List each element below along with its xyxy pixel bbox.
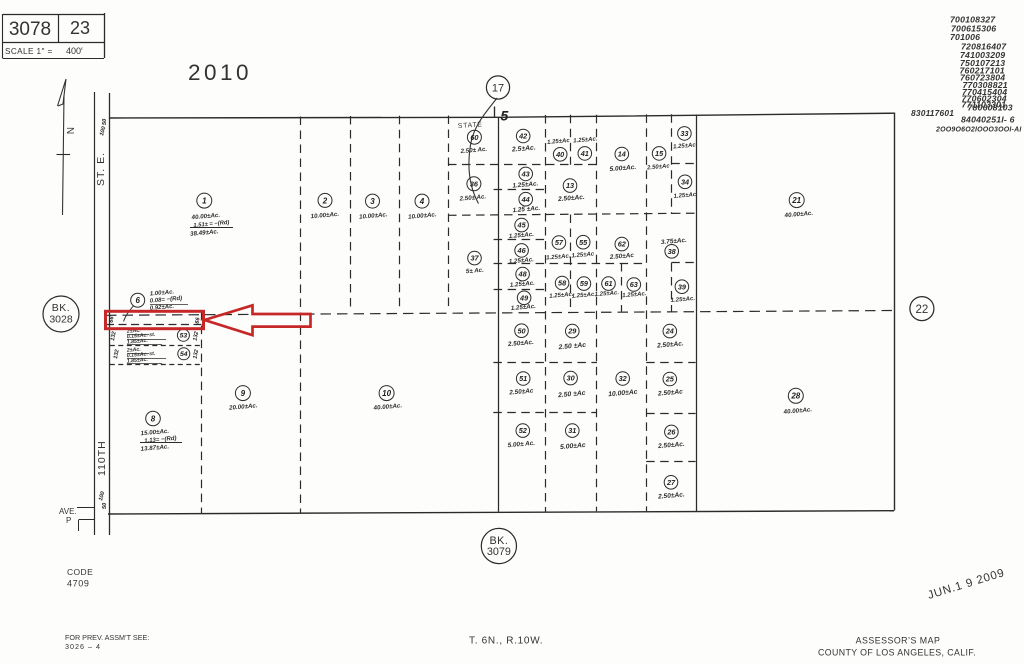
svg-text:40: 40	[555, 150, 564, 159]
svg-text:38: 38	[668, 247, 677, 256]
svg-text:49: 49	[519, 293, 529, 302]
svg-text:21: 21	[791, 196, 801, 205]
svg-text:23: 23	[70, 18, 90, 38]
svg-text:42: 42	[518, 132, 527, 141]
svg-text:84040251I- 6: 84040251I- 6	[961, 115, 1015, 125]
svg-text:55: 55	[579, 238, 588, 247]
svg-text:50: 50	[102, 118, 108, 125]
svg-text:400′: 400′	[66, 46, 83, 56]
svg-text:4709: 4709	[67, 579, 89, 589]
svg-text:4: 4	[419, 197, 425, 206]
svg-text:AVE.: AVE.	[59, 507, 77, 516]
svg-text:22: 22	[916, 304, 929, 316]
svg-text:51: 51	[519, 374, 527, 383]
svg-text:3026 – 4: 3026 – 4	[65, 642, 101, 651]
svg-text:3079: 3079	[487, 546, 511, 558]
svg-text:43: 43	[521, 170, 530, 179]
svg-text:29: 29	[567, 327, 577, 336]
svg-text:50: 50	[517, 326, 525, 335]
svg-text:39: 39	[678, 282, 687, 291]
svg-text:8: 8	[151, 414, 156, 423]
svg-text:3: 3	[370, 197, 375, 206]
svg-text:60: 60	[470, 133, 478, 142]
svg-text:6: 6	[135, 296, 140, 305]
svg-text:58: 58	[558, 279, 567, 288]
svg-text:P: P	[66, 516, 71, 525]
svg-text:57: 57	[555, 238, 564, 247]
svg-text:15: 15	[655, 149, 664, 158]
svg-text:110TH: 110TH	[96, 440, 108, 476]
svg-text:54: 54	[180, 351, 188, 358]
svg-text:37: 37	[470, 254, 479, 263]
svg-text:13: 13	[566, 181, 574, 190]
svg-text:26: 26	[666, 428, 676, 437]
svg-text:10: 10	[382, 389, 391, 398]
svg-text:59: 59	[580, 279, 589, 288]
svg-text:BK.: BK.	[52, 302, 70, 314]
svg-text:41: 41	[580, 149, 589, 158]
svg-text:9: 9	[241, 389, 246, 398]
svg-text:14: 14	[618, 150, 626, 159]
svg-text:27: 27	[666, 478, 676, 487]
svg-text:T. 6N., R.10W.: T. 6N., R.10W.	[469, 636, 543, 647]
svg-text:61: 61	[604, 279, 612, 288]
svg-text:CODE: CODE	[67, 567, 93, 577]
svg-text:FOR PREV. ASSM’T SEE:: FOR PREV. ASSM’T SEE:	[65, 633, 149, 642]
svg-text:24: 24	[665, 327, 674, 336]
svg-text:2: 2	[322, 196, 328, 205]
svg-text:45: 45	[517, 221, 527, 230]
svg-text:31: 31	[568, 426, 576, 435]
svg-text:63: 63	[630, 280, 638, 289]
svg-text:17: 17	[492, 83, 504, 95]
svg-text:ST. E.: ST. E.	[95, 152, 107, 186]
svg-text:SCALE 1″ =: SCALE 1″ =	[5, 47, 53, 56]
svg-text:701006: 701006	[950, 32, 980, 42]
svg-text:25: 25	[665, 375, 675, 384]
svg-text:32: 32	[619, 374, 627, 383]
svg-text:N: N	[64, 127, 75, 134]
svg-text:2OO9O6O2IOOO3OOI-AI: 2OO9O6O2IOOO3OOI-AI	[935, 127, 1022, 134]
svg-text:ASSESSOR’S MAP: ASSESSOR’S MAP	[856, 636, 941, 646]
svg-text:3078: 3078	[9, 19, 51, 40]
svg-text:44: 44	[521, 195, 530, 204]
svg-text:780608103: 780608103	[968, 103, 1013, 113]
svg-text:50: 50	[102, 502, 108, 509]
svg-text:46: 46	[517, 246, 527, 255]
svg-text:28: 28	[790, 392, 800, 401]
svg-text:5: 5	[501, 108, 509, 124]
svg-text:36: 36	[470, 179, 479, 188]
svg-text:34: 34	[681, 177, 689, 186]
svg-text:33: 33	[680, 129, 688, 138]
svg-text:3028: 3028	[49, 314, 73, 326]
svg-text:52: 52	[519, 426, 527, 435]
svg-text:48: 48	[518, 270, 528, 279]
svg-text:830117601: 830117601	[911, 108, 954, 118]
svg-text:62: 62	[618, 240, 626, 249]
svg-text:COUNTY OF LOS ANGELES, CALIF.: COUNTY OF LOS ANGELES, CALIF.	[818, 648, 976, 658]
svg-text:30: 30	[567, 374, 575, 383]
svg-text:53: 53	[180, 333, 188, 340]
svg-text:1: 1	[202, 196, 207, 205]
svg-text:2010: 2010	[188, 60, 252, 85]
